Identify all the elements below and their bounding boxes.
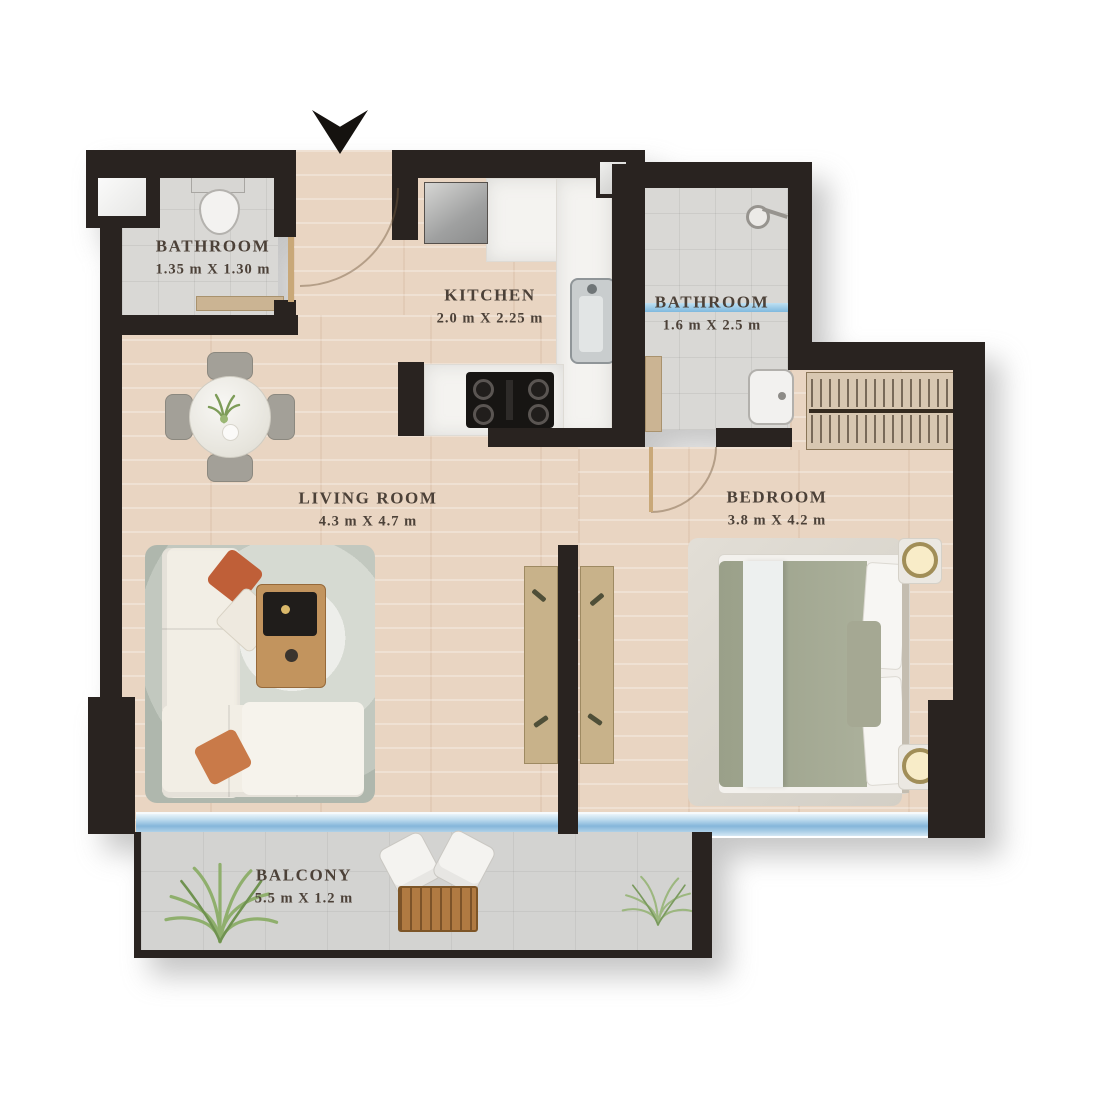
room-dimensions: 5.5 m X 1.2 m — [255, 888, 353, 910]
room-label-bathroom1: BATHROOM 1.35 m X 1.30 m — [156, 233, 271, 280]
room-name: KITCHEN — [437, 282, 544, 308]
room-name: BATHROOM — [655, 289, 770, 315]
room-dimensions: 2.0 m X 2.25 m — [437, 308, 544, 330]
floor-plan-canvas: BATHROOM 1.35 m X 1.30 m KITCHEN 2.0 m X… — [0, 0, 1100, 1100]
room-label-balcony: BALCONY 5.5 m X 1.2 m — [255, 862, 353, 909]
room-dimensions: 3.8 m X 4.2 m — [727, 510, 828, 532]
room-name: BEDROOM — [727, 484, 828, 510]
room-label-bedroom: BEDROOM 3.8 m X 4.2 m — [727, 484, 828, 531]
room-dimensions: 1.35 m X 1.30 m — [156, 259, 271, 281]
room-name: BATHROOM — [156, 233, 271, 259]
room-name: BALCONY — [255, 862, 353, 888]
floor-plan: BATHROOM 1.35 m X 1.30 m KITCHEN 2.0 m X… — [0, 0, 1100, 1100]
room-dimensions: 1.6 m X 2.5 m — [655, 315, 770, 337]
room-label-bathroom2: BATHROOM 1.6 m X 2.5 m — [655, 289, 770, 336]
room-name: LIVING ROOM — [299, 485, 438, 511]
door-arcs — [0, 0, 1100, 1100]
room-dimensions: 4.3 m X 4.7 m — [299, 511, 438, 533]
room-label-kitchen: KITCHEN 2.0 m X 2.25 m — [437, 282, 544, 329]
room-label-living: LIVING ROOM 4.3 m X 4.7 m — [299, 485, 438, 532]
